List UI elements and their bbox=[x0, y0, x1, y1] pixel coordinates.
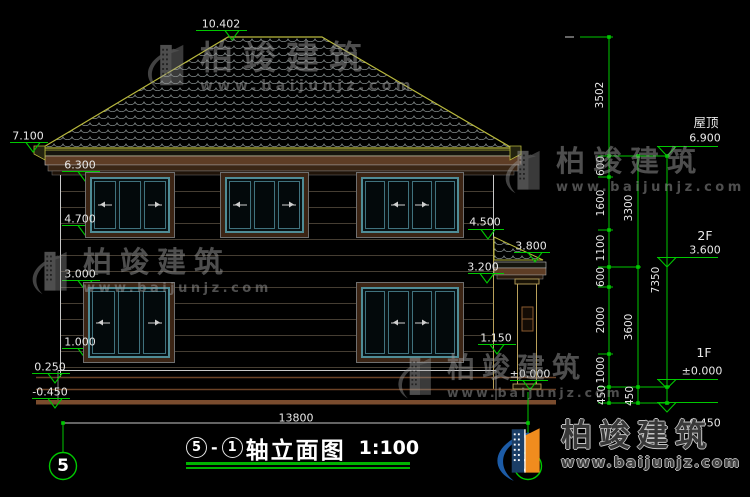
slide-arrow-icon bbox=[415, 322, 429, 323]
window-pane bbox=[435, 181, 455, 229]
window-2f-middle bbox=[220, 172, 309, 238]
watermark-top: 柏竣建筑 www.baijunjz.com bbox=[141, 41, 415, 95]
slide-arrow-icon bbox=[391, 322, 405, 323]
drawing-title: 5 - 1 轴立面图 1:100 bbox=[186, 434, 419, 461]
window-pane bbox=[119, 181, 141, 229]
dim-1100: 1100 bbox=[596, 235, 607, 262]
brand-logo-url: www.baijunjz.com bbox=[561, 456, 741, 471]
window-pane bbox=[388, 291, 408, 354]
mark-f1-sill: 1.000 bbox=[64, 337, 96, 348]
mark-f2-sill: 4.700 bbox=[64, 214, 96, 225]
window-pane bbox=[412, 291, 432, 354]
mark-left-eave: 7.100 bbox=[12, 131, 44, 142]
window-2f-left bbox=[85, 172, 175, 238]
watermark-logo-icon bbox=[392, 354, 438, 404]
title-underline-1 bbox=[186, 462, 410, 465]
window-sash bbox=[361, 287, 459, 358]
mark-porch-beam: 3.200 bbox=[467, 262, 499, 273]
window-2f-right bbox=[356, 172, 464, 238]
watermark-url: www.baijunjz.com bbox=[83, 282, 272, 295]
slide-arrow-icon bbox=[282, 205, 296, 206]
watermark-brand: 柏竣建筑 bbox=[83, 248, 272, 277]
slide-arrow-icon bbox=[148, 205, 162, 206]
window-pane bbox=[365, 291, 385, 354]
window-pane bbox=[229, 181, 251, 229]
watermark-right: 柏竣建筑 www.baijunjz.com bbox=[499, 147, 745, 199]
window-pane bbox=[435, 291, 455, 354]
elevation-drawing: 10.402 7.100 6.300 4.700 3.000 1.000 0.2… bbox=[0, 0, 750, 497]
axis-bubble-5: 5 bbox=[57, 456, 69, 476]
slide-arrow-icon bbox=[98, 205, 112, 206]
title-separator: - bbox=[211, 438, 218, 457]
slide-arrow-icon bbox=[148, 322, 162, 323]
window-pane bbox=[388, 181, 408, 229]
title-axis-end: 1 bbox=[222, 437, 243, 458]
brand-logo-text: 柏竣建筑 bbox=[561, 421, 741, 452]
f2-label: 2F bbox=[697, 230, 712, 243]
f1-level: ±0.000 bbox=[682, 366, 723, 377]
window-pane bbox=[278, 181, 300, 229]
window-pane bbox=[144, 181, 166, 229]
mark-left-ground: -0.450 bbox=[32, 387, 67, 398]
window-sash bbox=[225, 177, 304, 233]
window-pane bbox=[94, 181, 116, 229]
brand-logo-icon bbox=[489, 421, 551, 485]
window-pane bbox=[118, 291, 141, 354]
window-sash bbox=[361, 177, 459, 233]
watermark-url: www.baijunjz.com bbox=[447, 387, 623, 400]
brand-logo: 柏竣建筑 www.baijunjz.com bbox=[489, 421, 741, 485]
watermark-brand: 柏竣建筑 bbox=[200, 41, 415, 74]
slide-arrow-icon bbox=[391, 205, 405, 206]
watermark-logo-icon bbox=[499, 147, 547, 199]
dim-3600: 3600 bbox=[624, 314, 635, 341]
window-sash bbox=[90, 177, 170, 233]
slide-arrow-icon bbox=[96, 322, 110, 323]
mark-porch-top: 4.500 bbox=[469, 217, 501, 228]
mark-f2-head: 6.300 bbox=[64, 160, 96, 171]
watermark-brand: 柏竣建筑 bbox=[556, 147, 745, 176]
mark-ridge: 10.402 bbox=[202, 19, 241, 30]
title-underline-2 bbox=[186, 467, 410, 469]
mark-porch-eave: 3.800 bbox=[515, 241, 547, 252]
dim-2000: 2000 bbox=[596, 307, 607, 334]
title-axis-start: 5 bbox=[186, 437, 207, 458]
mark-porch-sill: 1.150 bbox=[480, 333, 512, 344]
title-scale: 1:100 bbox=[359, 437, 419, 459]
dim-total-width: 13800 bbox=[279, 413, 314, 424]
watermark-logo-icon bbox=[141, 41, 191, 95]
window-pane bbox=[365, 181, 385, 229]
title-text: 轴立面图 bbox=[246, 431, 346, 465]
watermark-bottom: 柏竣建筑 www.baijunjz.com bbox=[392, 354, 623, 404]
watermark-url: www.baijunjz.com bbox=[200, 79, 415, 93]
dim-7350: 7350 bbox=[651, 267, 662, 294]
dim-450b: 450 bbox=[625, 386, 636, 406]
watermark-left: 柏竣建筑 www.baijunjz.com bbox=[26, 248, 272, 300]
mark-plinth: 0.250 bbox=[34, 362, 66, 373]
slide-arrow-icon bbox=[233, 205, 247, 206]
slide-arrow-icon bbox=[415, 205, 429, 206]
window-pane bbox=[143, 291, 166, 354]
watermark-logo-icon bbox=[26, 248, 74, 300]
main-cornice bbox=[34, 146, 521, 175]
roof-level: 6.900 bbox=[689, 133, 721, 144]
f1-label: 1F bbox=[696, 347, 711, 360]
dim-600b: 600 bbox=[596, 267, 607, 287]
dim-3502: 3502 bbox=[595, 82, 606, 109]
watermark-url: www.baijunjz.com bbox=[556, 181, 745, 194]
f2-level: 3.600 bbox=[689, 245, 721, 256]
window-pane bbox=[254, 181, 276, 229]
roof-label: 屋顶 bbox=[693, 117, 718, 130]
window-pane bbox=[412, 181, 432, 229]
watermark-brand: 柏竣建筑 bbox=[447, 354, 623, 382]
